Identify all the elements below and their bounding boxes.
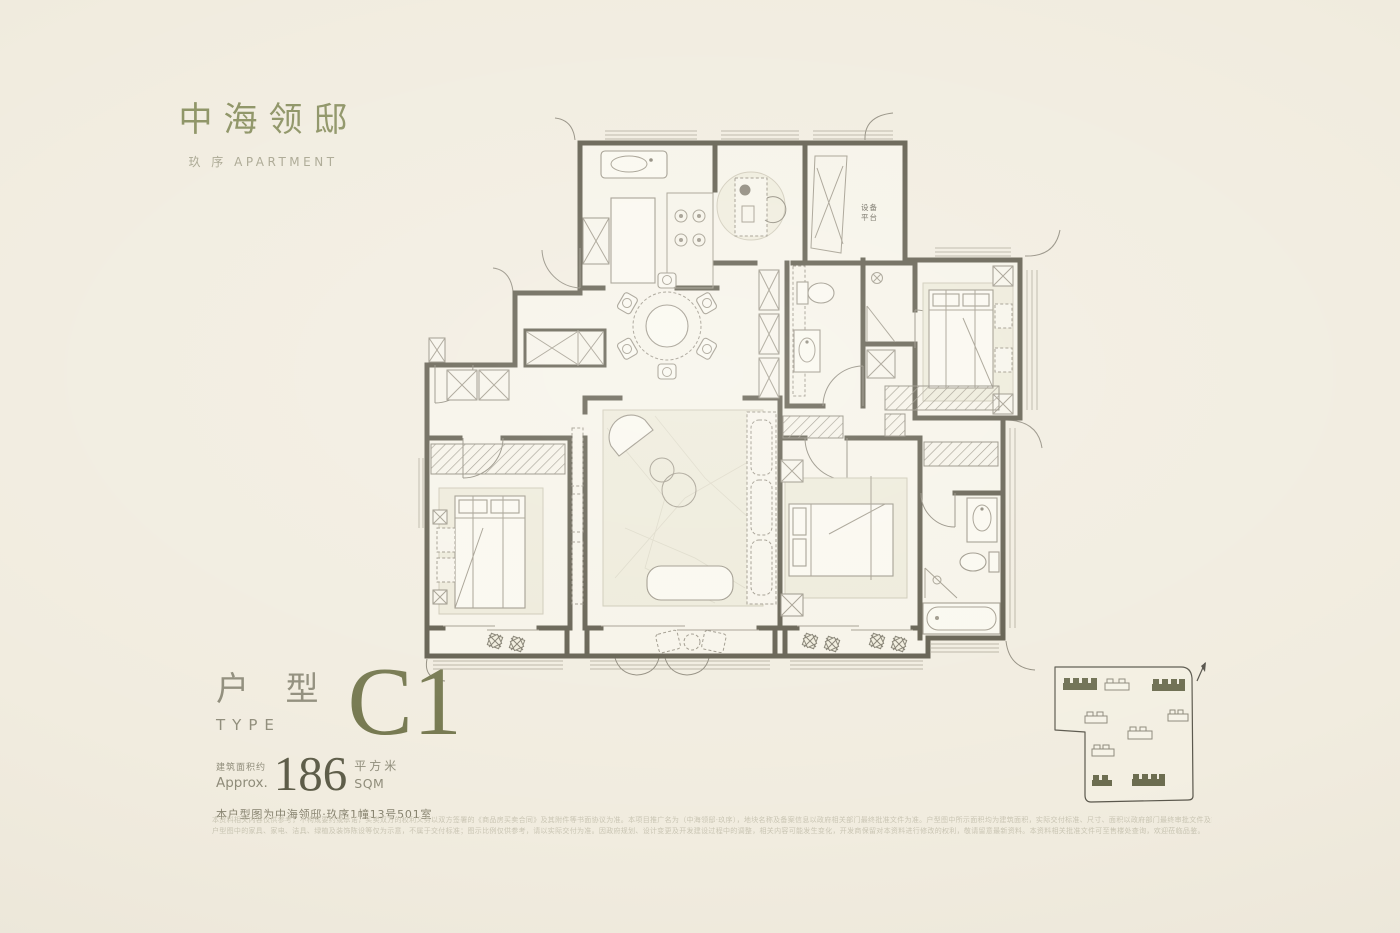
kitchen-island — [611, 198, 655, 283]
sink-icon — [967, 498, 997, 542]
brand-subtitle-cn: 玖 序 — [188, 155, 226, 169]
toilet-icon — [797, 282, 834, 304]
site-plan — [1045, 652, 1213, 812]
disclaimer-line-1: 本资料相关内容仅供参考，不构成要约或承诺，买卖双方的权利义务以双方签署的《商品房… — [212, 815, 1212, 826]
toilet-icon — [960, 552, 999, 572]
plant-icon — [869, 633, 884, 648]
poster: 中海领邸 玖 序 APARTMENT — [0, 0, 1400, 933]
area-labels: 建筑面积约 Approx. — [216, 760, 268, 793]
living-room — [603, 410, 776, 606]
plant-icon — [509, 636, 524, 651]
master-bedroom — [781, 460, 907, 616]
area-unit-en: SQM — [354, 776, 399, 791]
disclaimer: 本资料相关内容仅供参考，不构成要约或承诺，买卖双方的权利义务以双方签署的《商品房… — [212, 815, 1212, 837]
area-row: 建筑面积约 Approx. 186 平方米 SQM — [216, 756, 476, 793]
plant-icon — [487, 633, 502, 648]
brand-logo: 中海领邸 — [158, 92, 368, 141]
coffee-table — [647, 566, 733, 600]
type-label-block: 户 型 TYPE — [216, 662, 332, 734]
plant-icon — [824, 636, 839, 651]
type-code: C1 — [348, 664, 462, 740]
area-label-cn: 建筑面积约 — [216, 760, 268, 773]
nightstand — [437, 558, 455, 582]
type-row: 户 型 TYPE C1 — [216, 662, 476, 740]
fridge-cabinet — [583, 218, 609, 264]
study-nook — [717, 172, 786, 240]
area-units: 平方米 SQM — [354, 757, 399, 793]
pillow — [963, 294, 989, 306]
dining-chair — [658, 364, 676, 379]
wardrobe — [431, 444, 565, 474]
bed — [455, 496, 525, 608]
pillow — [491, 500, 519, 513]
plant-icon — [802, 633, 817, 648]
equipment-label: 设备 — [861, 202, 878, 212]
type-label-cn: 户 型 — [216, 662, 332, 710]
brand-block: 中海领邸 玖 序 APARTMENT — [158, 92, 368, 170]
floor-plan: 设备 平台 — [415, 98, 1070, 683]
area-unit-cn: 平方米 — [354, 757, 399, 774]
sink-icon — [794, 330, 820, 372]
pillow — [793, 539, 806, 566]
nightstand — [995, 304, 1012, 328]
dining-chair — [658, 273, 676, 288]
area-label-en: Approx. — [216, 775, 268, 791]
equipment-label-2: 平台 — [861, 212, 878, 222]
study-desk — [735, 178, 767, 236]
nightstand — [437, 528, 455, 552]
sofa — [747, 412, 776, 604]
area-value: 186 — [274, 756, 348, 793]
brand-subtitle: 玖 序 APARTMENT — [158, 153, 368, 170]
disclaimer-line-2: 户型图中的家具、家电、洁具、绿植及装饰陈设等仅为示意，不属于交付标准；图示比例仅… — [212, 826, 1212, 837]
unit-info: 户 型 TYPE C1 建筑面积约 Approx. 186 平方米 SQM 本户… — [216, 662, 476, 822]
pillow — [793, 508, 806, 535]
north-arrow-icon — [1197, 662, 1206, 681]
brand-subtitle-en: APARTMENT — [234, 155, 337, 169]
bathtub — [923, 603, 1000, 634]
plant-icon — [891, 636, 906, 651]
nightstand — [995, 348, 1012, 372]
bed — [929, 290, 993, 388]
type-label-en: TYPE — [216, 716, 332, 734]
desk-lamp-icon — [740, 185, 751, 196]
